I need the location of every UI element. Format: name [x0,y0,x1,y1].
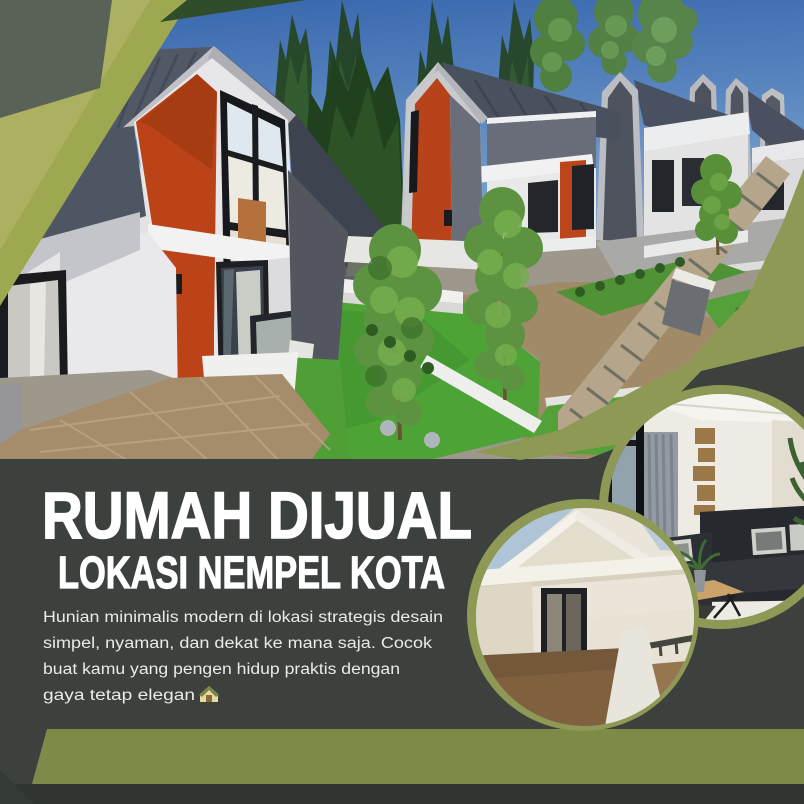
svg-text:gaya tetap elegan: gaya tetap elegan [43,687,195,704]
svg-text:LOKASI NEMPEL KOTA: LOKASI NEMPEL KOTA [58,547,445,598]
svg-text:RUMAH DIJUAL: RUMAH DIJUAL [42,478,472,552]
svg-text:Hunian minimalis modern di lok: Hunian minimalis modern di lokasi strate… [43,609,443,626]
svg-text:simpel, nyaman, dan dekat ke m: simpel, nyaman, dan dekat ke mana saja. … [43,635,432,652]
svg-text:buat kamu yang pengen hidup pr: buat kamu yang pengen hidup praktis deng… [43,661,400,678]
